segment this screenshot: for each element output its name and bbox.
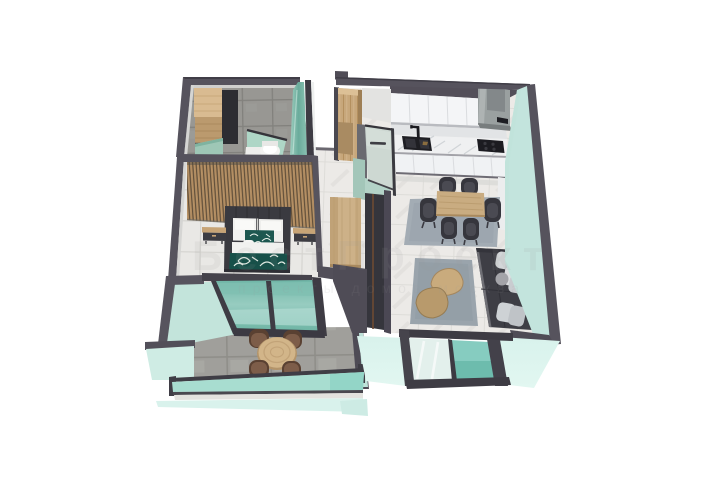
svg-text:проекты домов москва: проекты домов москва (238, 280, 526, 296)
svg-text:БестПроект: БестПроект (192, 232, 555, 279)
